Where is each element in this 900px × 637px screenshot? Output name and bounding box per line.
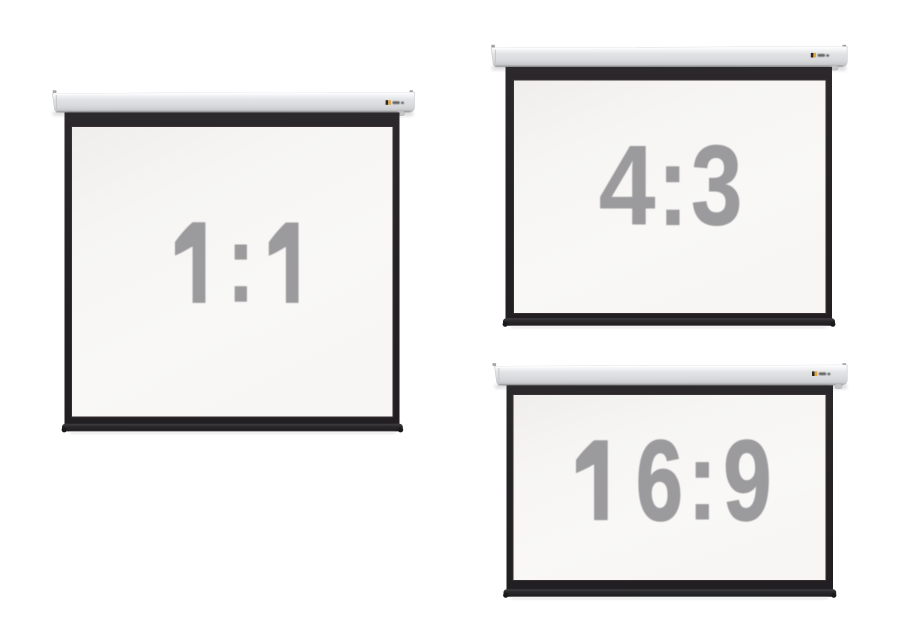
- svg-text:3: 3: [691, 122, 742, 248]
- svg-text:9: 9: [723, 417, 771, 544]
- svg-text:6: 6: [636, 418, 683, 545]
- svg-text:4: 4: [599, 122, 656, 249]
